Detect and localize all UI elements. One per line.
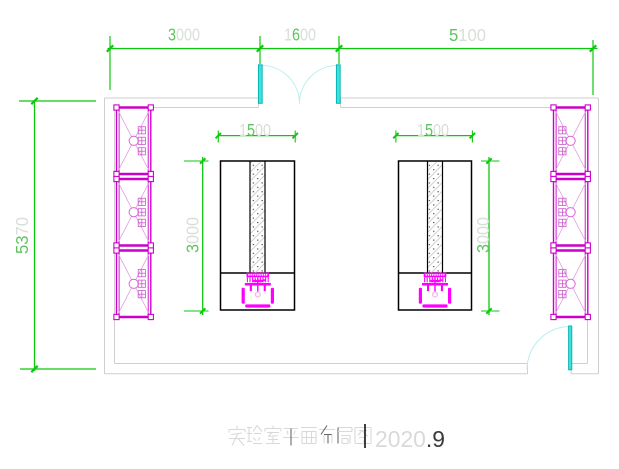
svg-text:2020.9: 2020.9 [375,426,445,452]
svg-text:5100: 5100 [449,25,486,45]
svg-text:1600: 1600 [284,25,316,45]
svg-text:1500: 1500 [417,120,449,140]
svg-text:1500: 1500 [239,120,271,140]
svg-text:5370: 5370 [12,217,32,254]
svg-text:3000: 3000 [183,217,203,253]
svg-text:3000: 3000 [168,25,200,45]
svg-text:3000: 3000 [473,217,493,253]
